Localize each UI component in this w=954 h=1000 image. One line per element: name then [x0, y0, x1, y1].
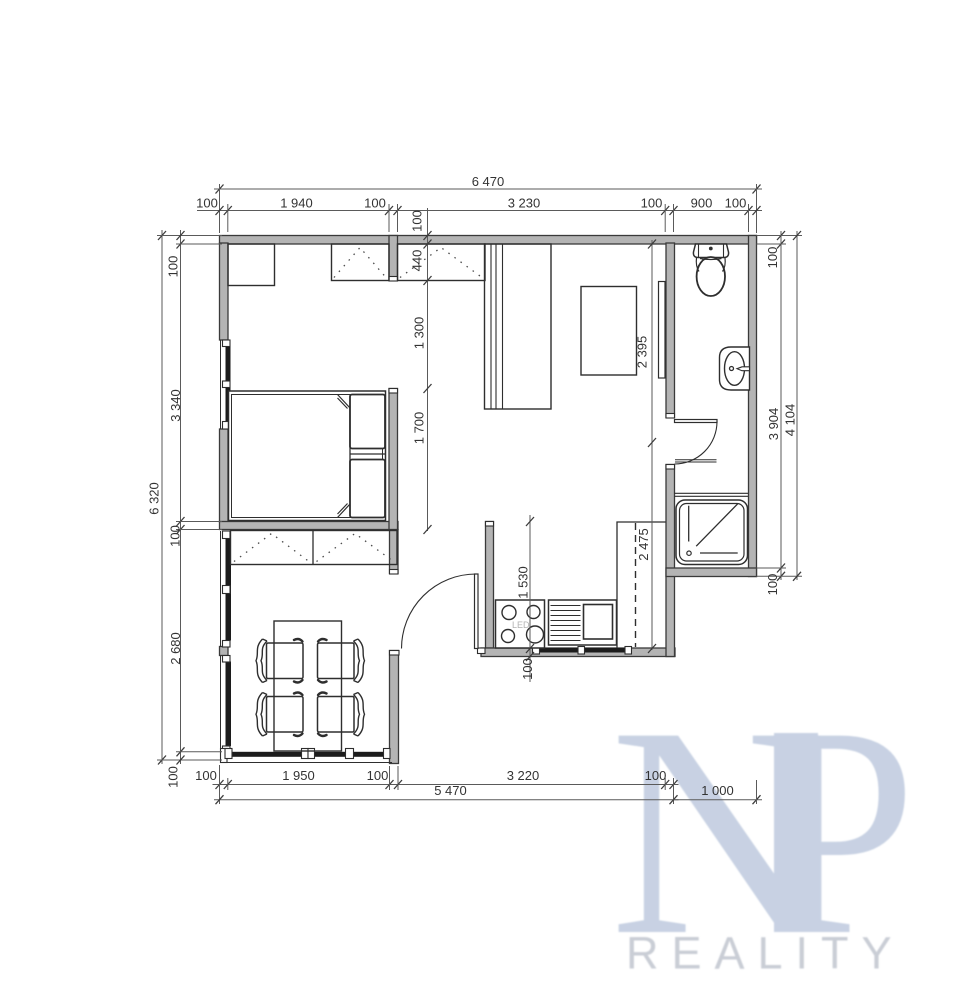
svg-text:100: 100 [641, 196, 663, 211]
svg-text:LED: LED [512, 620, 530, 630]
svg-text:6 320: 6 320 [147, 482, 162, 515]
svg-text:4 104: 4 104 [783, 404, 798, 437]
svg-text:3 904: 3 904 [766, 408, 781, 441]
svg-text:1 300: 1 300 [412, 317, 427, 350]
svg-text:100: 100 [196, 196, 218, 211]
svg-text:100: 100 [520, 658, 535, 680]
svg-text:1 700: 1 700 [412, 412, 427, 445]
svg-text:100: 100 [168, 525, 183, 547]
svg-text:3 230: 3 230 [508, 196, 541, 211]
svg-text:2 395: 2 395 [635, 336, 650, 369]
svg-text:100: 100 [765, 574, 780, 596]
svg-text:6 470: 6 470 [472, 174, 505, 189]
svg-text:2 680: 2 680 [168, 632, 183, 665]
svg-text:2 475: 2 475 [636, 528, 651, 561]
svg-text:3 340: 3 340 [168, 389, 183, 422]
svg-text:1 940: 1 940 [280, 196, 313, 211]
svg-text:440: 440 [410, 250, 425, 272]
svg-text:100: 100 [166, 766, 181, 788]
svg-text:100: 100 [410, 210, 425, 232]
svg-text:100: 100 [645, 768, 667, 783]
svg-text:100: 100 [765, 247, 780, 269]
svg-text:100: 100 [195, 768, 217, 783]
svg-text:100: 100 [166, 256, 181, 278]
svg-text:1 530: 1 530 [516, 566, 531, 599]
svg-text:REALITY: REALITY [626, 928, 905, 979]
svg-text:5 470: 5 470 [434, 783, 467, 798]
svg-text:100: 100 [364, 196, 386, 211]
svg-text:1 000: 1 000 [701, 783, 734, 798]
svg-text:100: 100 [367, 768, 389, 783]
svg-text:900: 900 [691, 196, 713, 211]
svg-text:1 950: 1 950 [282, 768, 315, 783]
svg-text:100: 100 [725, 196, 747, 211]
svg-text:3 220: 3 220 [507, 768, 540, 783]
